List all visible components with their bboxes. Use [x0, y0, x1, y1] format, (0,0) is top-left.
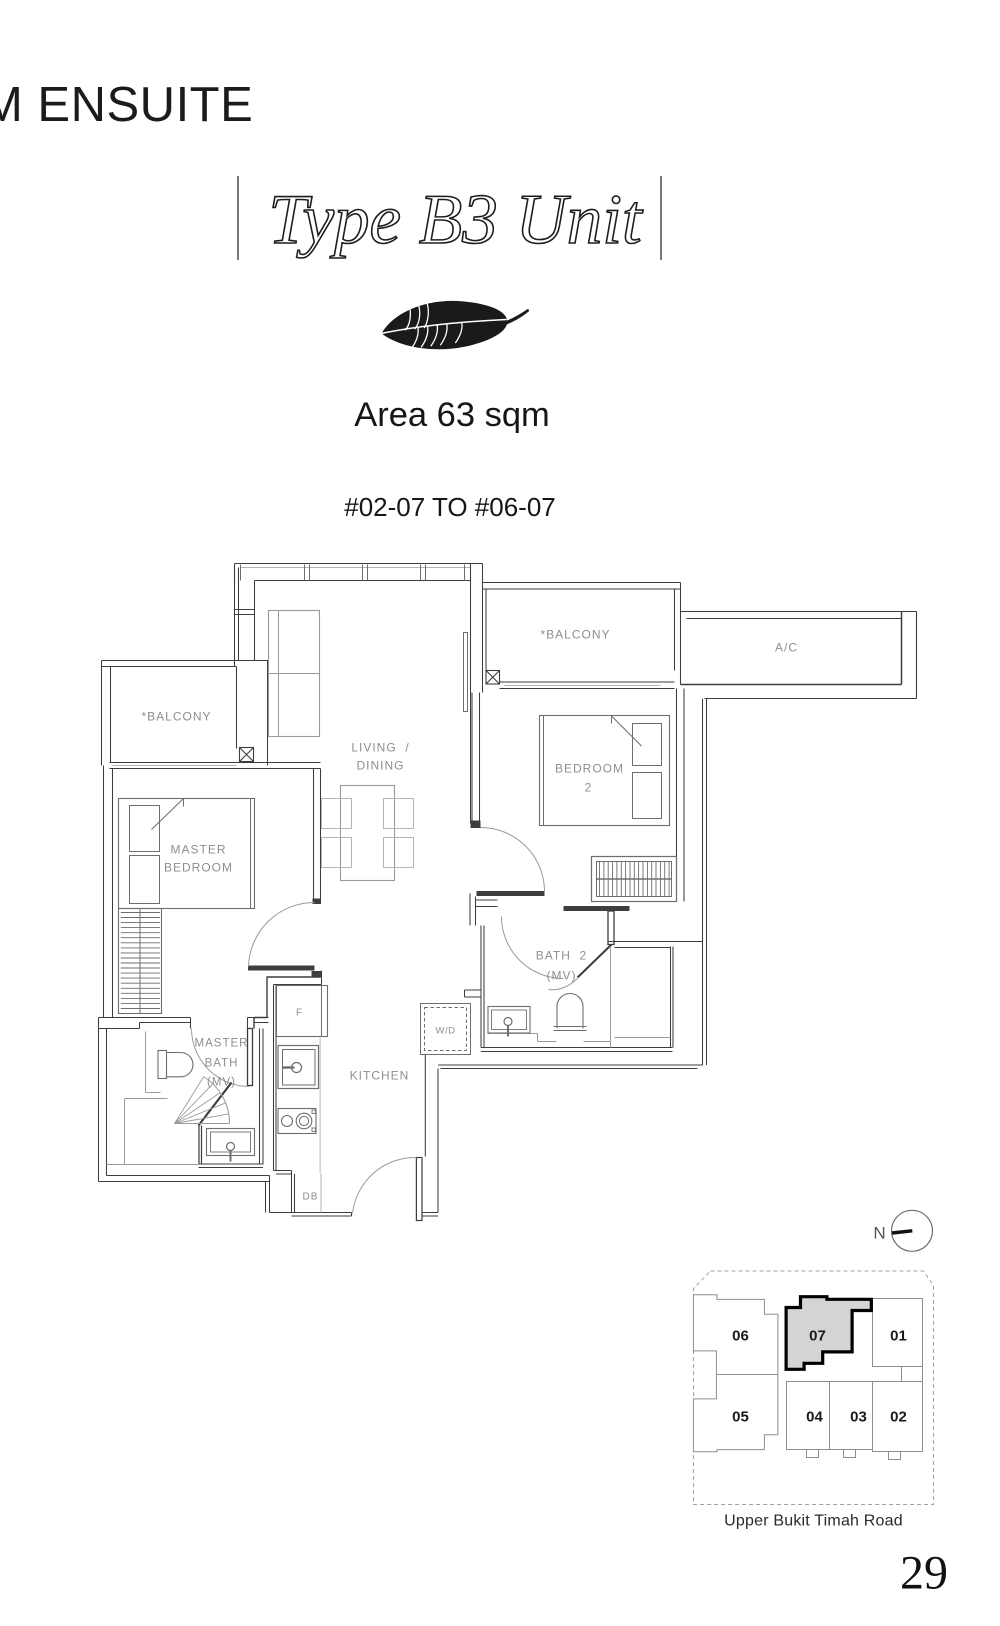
svg-text:DINING: DINING: [357, 759, 405, 773]
svg-text:Upper Bukit Timah Road: Upper Bukit Timah Road: [724, 1513, 903, 1530]
svg-text:MASTER: MASTER: [195, 1038, 249, 1050]
svg-text:*BALCONY: *BALCONY: [141, 710, 211, 724]
svg-text:F: F: [296, 1008, 303, 1019]
svg-text:05: 05: [732, 1409, 749, 1426]
svg-text:BEDROOM: BEDROOM: [555, 762, 624, 776]
svg-text:BEDROOM: BEDROOM: [164, 861, 233, 875]
svg-text:06: 06: [732, 1328, 749, 1345]
svg-text:04: 04: [806, 1409, 823, 1426]
svg-text:BATH: BATH: [205, 1058, 239, 1070]
svg-text:(MV): (MV): [547, 969, 577, 983]
svg-text:BATH 2: BATH 2: [536, 949, 587, 963]
svg-text:07: 07: [809, 1328, 826, 1345]
svg-text:DB: DB: [303, 1192, 319, 1203]
svg-text:03: 03: [850, 1409, 867, 1426]
svg-text:A/C: A/C: [775, 641, 798, 655]
svg-text:01: 01: [890, 1328, 907, 1345]
svg-text:MASTER: MASTER: [170, 843, 226, 857]
svg-text:N: N: [873, 1224, 885, 1243]
svg-text:LIVING /: LIVING /: [351, 741, 409, 755]
svg-text:29: 29: [900, 1547, 948, 1600]
svg-text:KITCHEN: KITCHEN: [350, 1069, 410, 1083]
svg-text:02: 02: [890, 1409, 907, 1426]
svg-text:W/D: W/D: [436, 1026, 456, 1037]
svg-text:2: 2: [585, 781, 593, 795]
svg-text:*BALCONY: *BALCONY: [540, 628, 610, 642]
